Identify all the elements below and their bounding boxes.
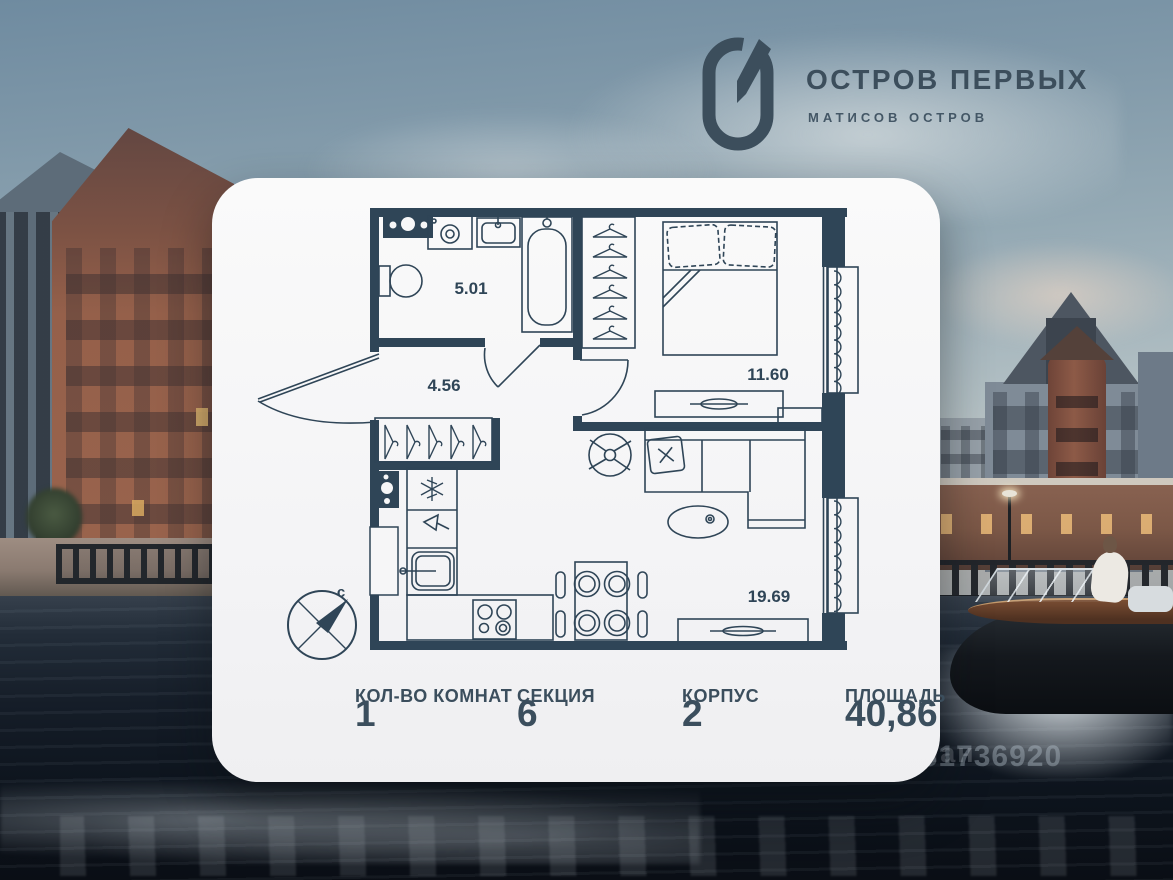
lit-window bbox=[132, 500, 144, 516]
floor-plan: 5.01 4.56 11.60 19.69 с bbox=[240, 195, 880, 665]
stove-icon bbox=[473, 600, 516, 639]
stat-area-value: 40,86 bbox=[845, 693, 938, 735]
bathroom-door bbox=[484, 345, 540, 387]
balustrade bbox=[56, 544, 234, 584]
g-monogram-icon bbox=[700, 36, 776, 152]
sofa-icon bbox=[645, 428, 805, 528]
tap-symbol-icon bbox=[424, 515, 449, 530]
wall-niche bbox=[370, 527, 398, 595]
wave-foam bbox=[60, 816, 1160, 876]
compass-north-label: с bbox=[337, 584, 345, 601]
entrance-door bbox=[258, 354, 379, 423]
balcony-living bbox=[824, 498, 859, 613]
street-lamp bbox=[1008, 494, 1011, 564]
vent-shaft-bathroom bbox=[383, 212, 433, 238]
room-area-living: 19.69 bbox=[748, 587, 791, 606]
windowsill bbox=[778, 408, 822, 423]
stat-section-value: 6 bbox=[517, 693, 538, 735]
warehouse-lit-windows bbox=[941, 514, 1173, 534]
warehouse-roof bbox=[933, 478, 1173, 485]
vent-shaft-kitchen bbox=[372, 471, 399, 508]
bedroom-door bbox=[580, 360, 628, 415]
coffee-table-icon bbox=[668, 506, 728, 538]
tv-stand-icon bbox=[678, 619, 808, 644]
motorboat-hull bbox=[950, 610, 1173, 714]
room-area-bathroom: 5.01 bbox=[454, 279, 487, 298]
washing-machine-icon bbox=[428, 216, 472, 249]
lit-window bbox=[196, 408, 208, 426]
hallway-hangers bbox=[385, 425, 486, 459]
compass bbox=[288, 591, 356, 659]
bed-icon bbox=[663, 222, 777, 355]
stat-rooms-label: КОЛ-ВО КОМНАТ bbox=[355, 686, 512, 707]
brand-logo: ОСТРОВ ПЕРВЫХ МАТИСОВ ОСТРОВ bbox=[700, 34, 1120, 154]
dining-set-icon bbox=[556, 562, 647, 640]
boat-seat bbox=[1128, 586, 1173, 612]
listing-image: циан 131736920 ОСТРОВ ПЕРВЫХ МАТИСОВ ОСТ… bbox=[0, 0, 1173, 880]
waterfront-warehouse bbox=[933, 478, 1173, 570]
bedroom-hangers bbox=[593, 224, 627, 339]
brand-subtitle: МАТИСОВ ОСТРОВ bbox=[808, 110, 988, 125]
fridge-icon bbox=[421, 477, 443, 501]
bedroom-dresser bbox=[655, 391, 783, 417]
sofa-pillow bbox=[647, 436, 685, 474]
brand-title: ОСТРОВ ПЕРВЫХ bbox=[806, 64, 1089, 96]
kitchen-sink-icon bbox=[400, 552, 454, 590]
ceiling-light-icon bbox=[589, 434, 631, 476]
stat-rooms-value: 1 bbox=[355, 693, 376, 735]
stat-building-value: 2 bbox=[682, 693, 703, 735]
person-head bbox=[1103, 536, 1117, 553]
room-area-hallway: 4.56 bbox=[427, 376, 460, 395]
bathtub-icon bbox=[522, 210, 572, 332]
room-area-bedroom: 11.60 bbox=[747, 365, 789, 384]
toilet-icon bbox=[379, 265, 422, 297]
